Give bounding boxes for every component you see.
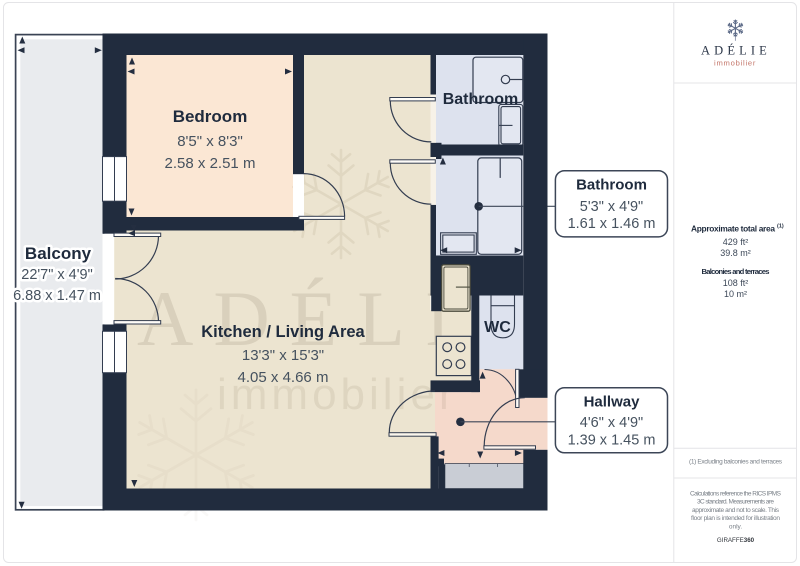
svg-text:ADÉLIE: ADÉLIE bbox=[701, 44, 771, 58]
svg-text:(1) Excluding balconies and te: (1) Excluding balconies and terraces bbox=[689, 459, 783, 466]
svg-text:6.88 x 1.47 m: 6.88 x 1.47 m bbox=[13, 288, 101, 304]
svg-text:immobilier: immobilier bbox=[714, 59, 757, 68]
svg-text:(1): (1) bbox=[777, 224, 784, 230]
svg-text:8'5" x 8'3": 8'5" x 8'3" bbox=[177, 133, 243, 150]
svg-text:GIRAFFE360: GIRAFFE360 bbox=[717, 537, 755, 544]
svg-text:4'6" x 4'9": 4'6" x 4'9" bbox=[580, 415, 643, 431]
svg-text:Calculations reference the RIC: Calculations reference the RICS IPMS bbox=[690, 491, 782, 498]
svg-text:108 ft²: 108 ft² bbox=[723, 278, 749, 288]
svg-text:WC: WC bbox=[484, 319, 511, 336]
svg-text:Bathroom: Bathroom bbox=[443, 91, 519, 108]
svg-text:39.8 m²: 39.8 m² bbox=[720, 248, 751, 258]
svg-text:Balcony: Balcony bbox=[25, 244, 92, 263]
svg-text:4.05 x 4.66 m: 4.05 x 4.66 m bbox=[238, 369, 329, 386]
svg-text:Hallway: Hallway bbox=[584, 394, 641, 411]
svg-text:Bathroom: Bathroom bbox=[576, 177, 647, 194]
svg-text:3C standard. Measurements are: 3C standard. Measurements are bbox=[697, 499, 774, 506]
svg-text:Balconies and terraces: Balconies and terraces bbox=[702, 267, 770, 276]
svg-text:429 ft²: 429 ft² bbox=[723, 237, 749, 247]
svg-text:floor plan is intended for ill: floor plan is intended for illustration bbox=[691, 515, 780, 522]
svg-text:Kitchen / Living Area: Kitchen / Living Area bbox=[201, 323, 365, 341]
svg-text:13'3" x 15'3": 13'3" x 15'3" bbox=[242, 347, 324, 364]
svg-text:approximate and not to scale.: approximate and not to scale. This bbox=[692, 507, 780, 514]
svg-text:10 m²: 10 m² bbox=[724, 289, 747, 299]
svg-text:2.58 x 2.51 m: 2.58 x 2.51 m bbox=[165, 155, 256, 172]
svg-text:5'3" x 4'9": 5'3" x 4'9" bbox=[580, 199, 643, 215]
svg-text:1.61 x 1.46 m: 1.61 x 1.46 m bbox=[568, 216, 656, 232]
svg-text:Bedroom: Bedroom bbox=[173, 107, 248, 126]
svg-text:only.: only. bbox=[729, 523, 742, 530]
svg-text:22'7" x 4'9": 22'7" x 4'9" bbox=[21, 267, 92, 283]
svg-text:Approximate total area: Approximate total area bbox=[691, 224, 775, 234]
svg-text:1.39 x 1.45 m: 1.39 x 1.45 m bbox=[568, 433, 656, 449]
